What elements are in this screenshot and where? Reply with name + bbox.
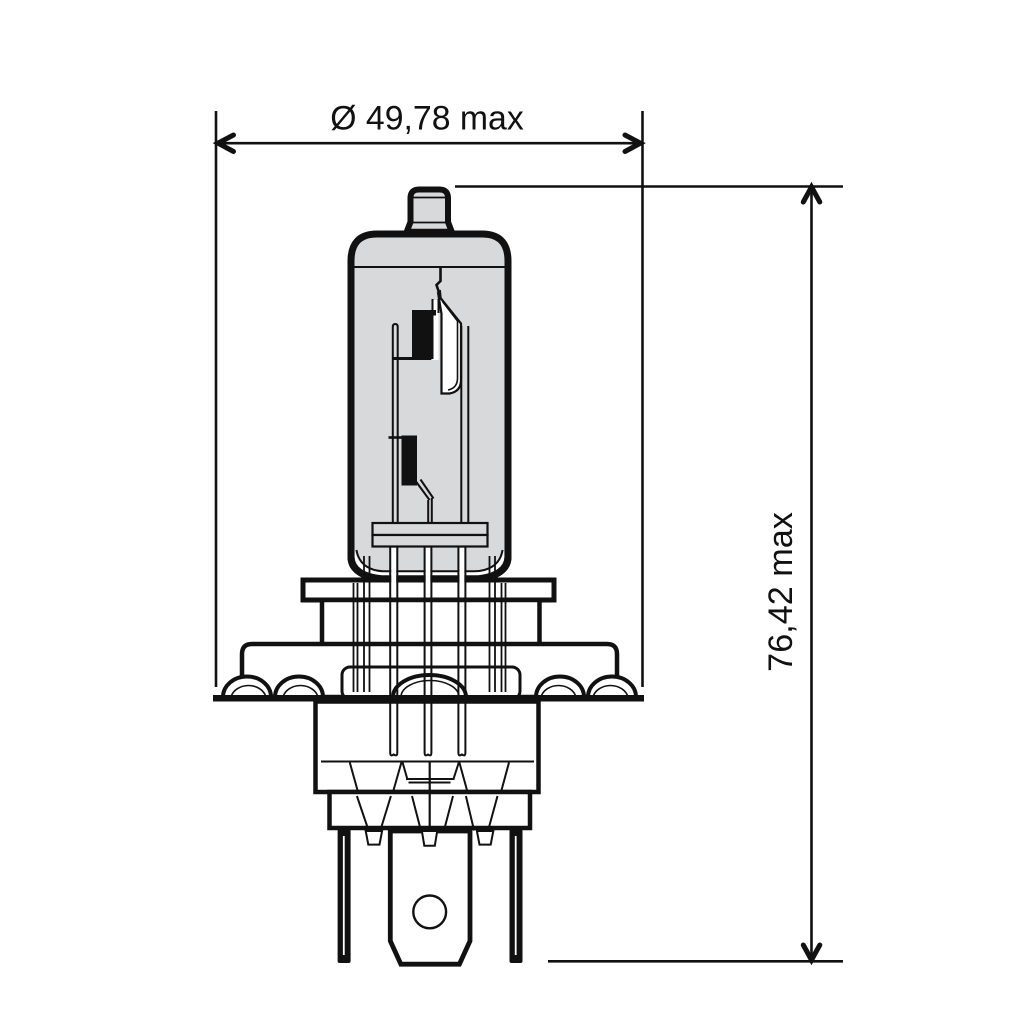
svg-text:Ø 49,78 max: Ø 49,78 max bbox=[330, 100, 524, 138]
svg-text:76,42 max: 76,42 max bbox=[762, 512, 800, 672]
